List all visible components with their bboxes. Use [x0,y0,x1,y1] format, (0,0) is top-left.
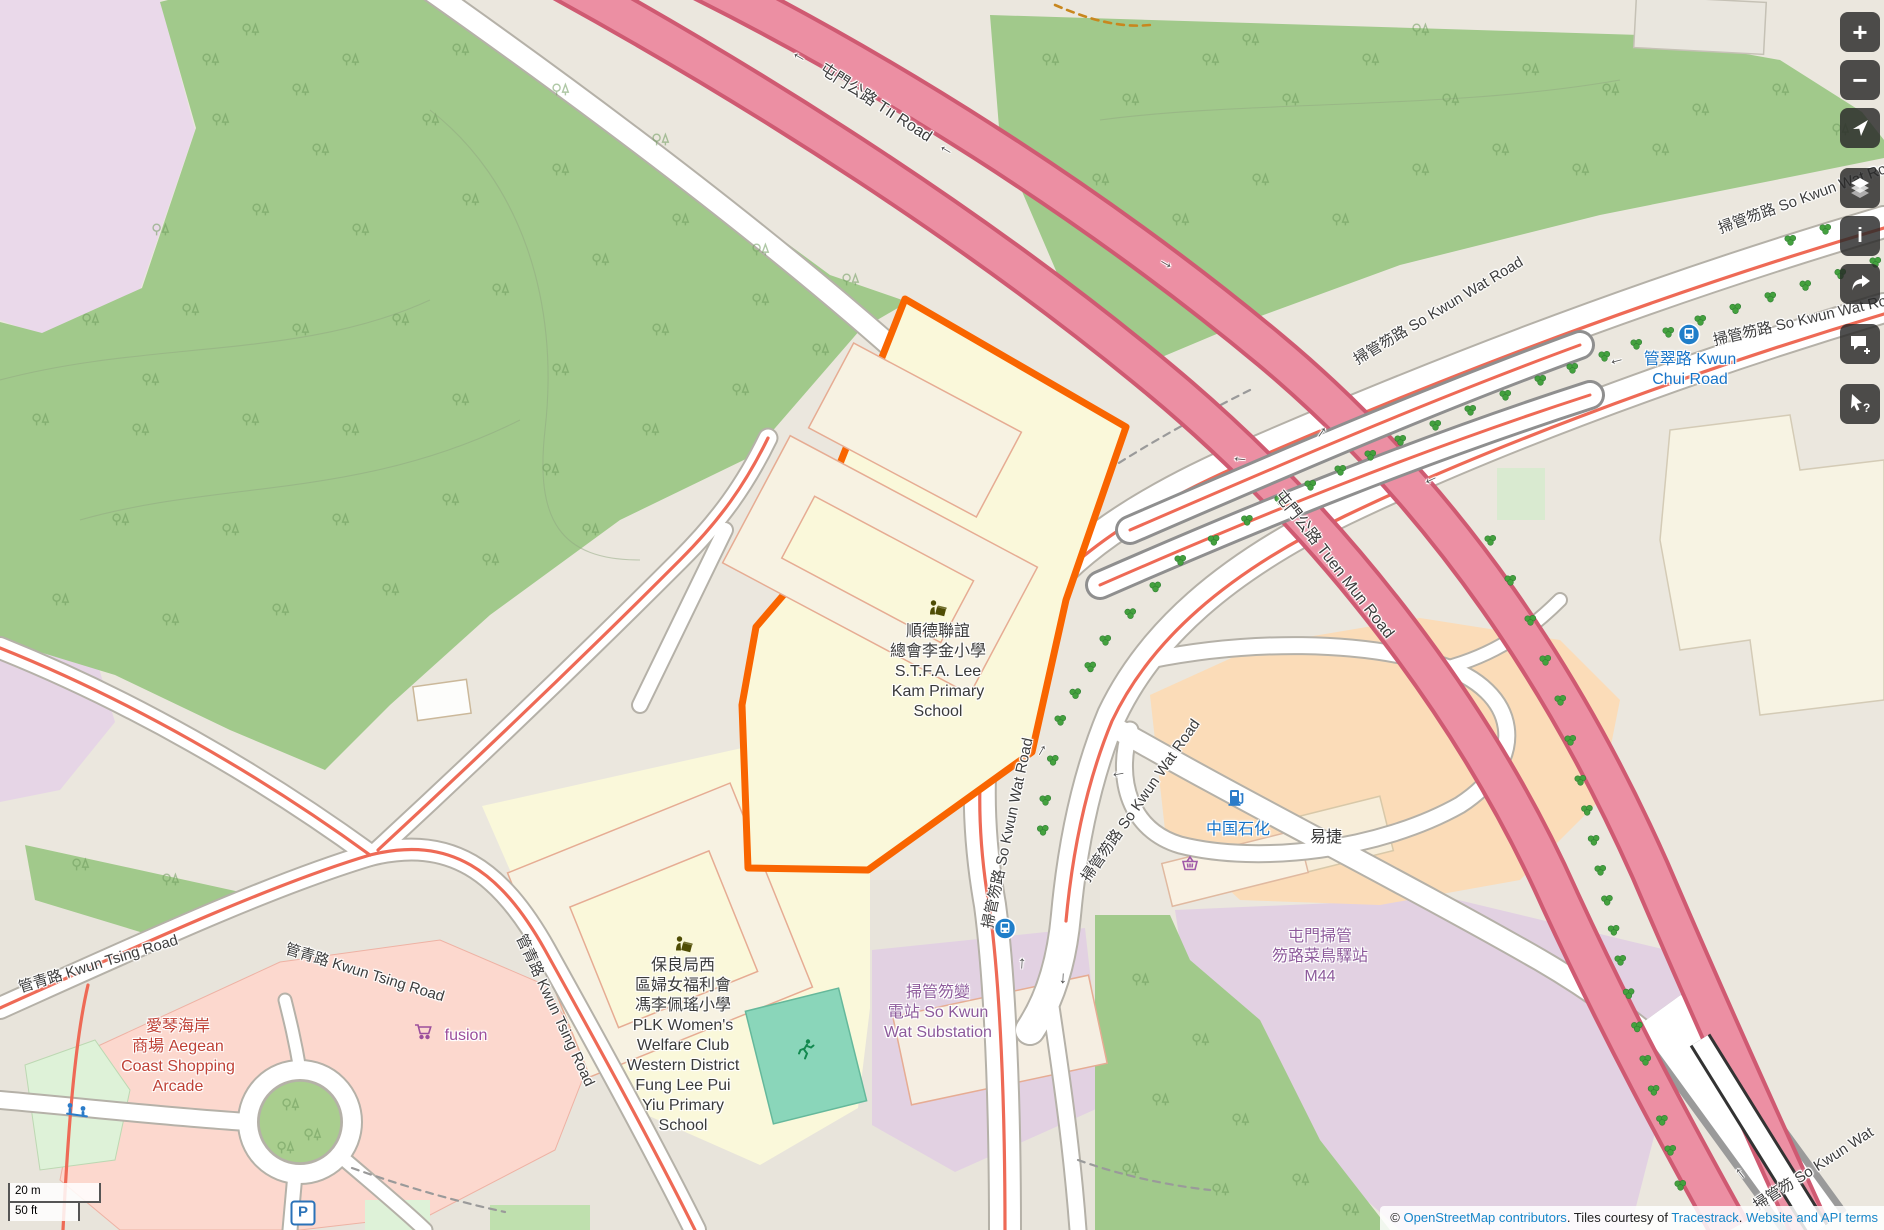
info-icon: i [1857,226,1863,246]
parking-icon: P [291,1201,316,1226]
oneway-arrow: ↓ [1058,968,1068,988]
label-m44-station[interactable]: 屯門掃管 笏路菜鳥驛站 M44 [1272,927,1368,987]
stop-line: 管翠路 Kwun [1644,350,1736,370]
share-icon [1849,273,1871,295]
stop-line: Chui Road [1644,370,1736,390]
add-note-button[interactable] [1840,324,1880,364]
query-features-button[interactable]: ? [1840,384,1880,424]
attrib-middle: . Tiles courtesy of [1567,1210,1672,1225]
area-green-s2 [490,1205,590,1230]
attrib-tracestrack-link[interactable]: Tracestrack [1671,1210,1738,1225]
m44-line: 屯門掃管 [1272,927,1368,947]
attrib-separator: . [1739,1210,1746,1225]
label-plk-school[interactable]: 保良局西 區婦女福利會 馮李佩瑤小學 PLK Women's Welfare C… [627,956,740,1136]
zoom-out-button[interactable]: − [1840,60,1880,100]
bus-stop-icon[interactable] [1677,323,1701,352]
plk-line: Fung Lee Pui [627,1076,740,1096]
stfa-line: 總會李金小學 [890,642,986,662]
label-easyjoy[interactable]: 易捷 [1310,828,1342,848]
fusion-text: fusion [445,1026,488,1046]
query-cursor-icon: ? [1848,392,1872,416]
label-shopping-arcade[interactable]: 愛琴海岸 商場 Aegean Coast Shopping Arcade [121,1017,235,1097]
minus-icon: − [1852,67,1867,93]
scale-bar: 20 m 50 ft [8,1183,101,1221]
layers-icon [1848,176,1872,200]
zoom-in-button[interactable]: + [1840,12,1880,52]
svg-text:?: ? [1863,401,1870,415]
plk-line: Yiu Primary [627,1096,740,1116]
attribution-bar: © OpenStreetMap contributors. Tiles cour… [1380,1206,1884,1230]
label-fusion[interactable]: fusion [445,1026,488,1046]
m44-line: 笏路菜鳥驛站 [1272,947,1368,967]
attrib-copyright: © [1390,1210,1403,1225]
label-sinopec[interactable]: 中国石化 [1206,820,1270,840]
substation-line: Wat Substation [884,1023,992,1043]
fuel-station-icon [1226,788,1248,813]
bus-stop-icon[interactable] [993,917,1017,946]
plk-line: 馮李佩瑤小學 [627,996,740,1016]
plk-line: PLK Women's [627,1016,740,1036]
easyjoy-text: 易捷 [1310,828,1342,848]
note-bubble-icon [1848,332,1872,356]
scale-imperial: 50 ft [8,1201,80,1221]
share-button[interactable] [1840,264,1880,304]
stfa-line: School [890,702,986,722]
legend-button[interactable]: i [1840,216,1880,256]
attrib-osm-link[interactable]: OpenStreetMap contributors [1404,1210,1567,1225]
m44-line: M44 [1272,967,1368,987]
layers-button[interactable] [1840,168,1880,208]
arcade-line: Arcade [121,1077,235,1097]
supermarket-basket-icon [1180,855,1200,878]
label-substation[interactable]: 掃管笏變 電站 So Kwun Wat Substation [884,983,992,1043]
label-kwun-chui-stop[interactable]: 管翠路 Kwun Chui Road [1644,350,1736,390]
arcade-line: Coast Shopping [121,1057,235,1077]
oneway-arrow: ← [1231,446,1250,467]
plk-line: School [627,1116,740,1136]
locate-arrow-icon [1849,117,1871,139]
map-viewport[interactable]: 屯門公路 Tıı Road 屯門公路 Tuen Mun Road 掃管笏路 So… [0,0,1884,1230]
scale-metric: 20 m [8,1183,101,1203]
playground-icon [64,1099,90,1126]
locate-button[interactable] [1840,108,1880,148]
running-person-icon [795,1038,817,1067]
stfa-line: 順德聯誼 [890,622,986,642]
sinopec-text: 中国石化 [1206,820,1270,840]
school-icon [927,599,949,624]
substation-line: 電站 So Kwun [884,1003,992,1023]
plk-line: Western District [627,1056,740,1076]
plk-line: 區婦女福利會 [627,976,740,996]
stfa-line: Kam Primary [890,682,986,702]
plus-icon: + [1852,19,1867,45]
arcade-line: 商場 Aegean [121,1037,235,1057]
label-stfa-school[interactable]: 順德聯誼 總會李金小學 S.T.F.A. Lee Kam Primary Sch… [890,622,986,722]
plk-line: Welfare Club [627,1036,740,1056]
arcade-line: 愛琴海岸 [121,1017,235,1037]
school-icon [673,935,695,960]
supermarket-cart-icon [414,1023,434,1046]
oneway-arrow: ↑ [1017,953,1027,973]
attrib-terms-link[interactable]: Website and API terms [1746,1210,1878,1225]
substation-line: 掃管笏變 [884,983,992,1003]
oneway-arrow: ← [1108,761,1128,784]
stfa-line: S.T.F.A. Lee [890,662,986,682]
